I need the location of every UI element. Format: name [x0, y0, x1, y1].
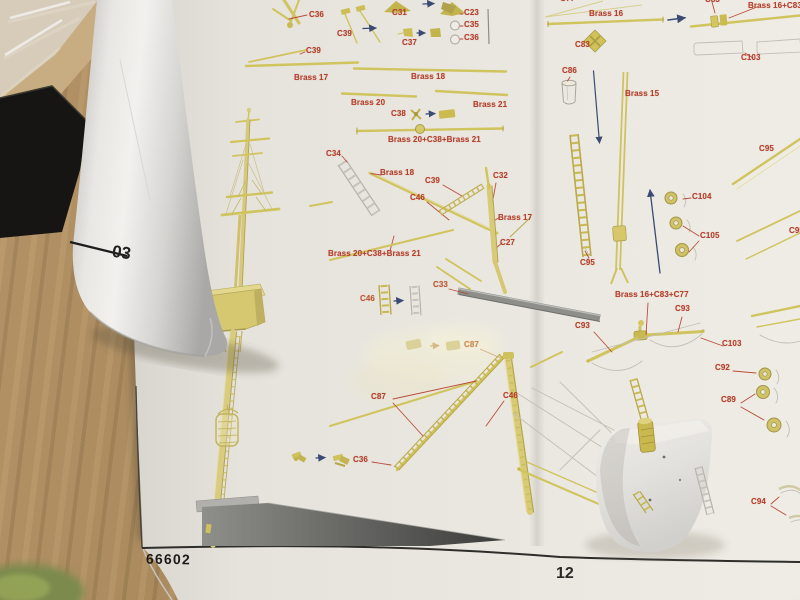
- part-label: C27: [500, 239, 515, 248]
- part-label: C34: [326, 150, 341, 159]
- part-label: C46: [503, 392, 518, 401]
- part-label: C103: [741, 54, 761, 63]
- part-label: C33: [433, 281, 448, 290]
- part-label: C37: [402, 39, 417, 48]
- part-label: Brass 16+C83+C77: [615, 291, 689, 300]
- part-label: C36: [353, 456, 368, 465]
- part-label: C39: [306, 47, 321, 56]
- part-label: C83: [705, 0, 720, 5]
- photo-linework: [0, 0, 800, 600]
- part-label: Brass 20: [351, 99, 385, 108]
- part-label: Brass 17: [294, 74, 328, 83]
- part-label: C39: [425, 177, 440, 186]
- part-label: Brass 21: [473, 101, 507, 110]
- part-label: C23: [464, 9, 479, 18]
- part-label: C92: [715, 364, 730, 373]
- part-label: C93: [675, 305, 690, 314]
- part-label: C95: [759, 145, 774, 154]
- part-label: C46: [410, 194, 425, 203]
- part-label: C36: [464, 34, 479, 43]
- part-label: Brass 20+C38+Brass 21: [328, 250, 421, 259]
- photo-of-instruction-sheet: C36C31C39C37C23C35C36C39Brass 17Brass 18…: [0, 0, 800, 600]
- part-label: C86: [562, 67, 577, 76]
- part-label: Brass 20+C38+Brass 21: [388, 136, 481, 145]
- part-label: C94: [751, 498, 766, 507]
- part-label: C31: [392, 9, 407, 18]
- part-label: C83: [575, 41, 590, 50]
- part-label: Brass 16: [589, 10, 623, 19]
- kit-number: 66602: [146, 551, 191, 568]
- part-label: C87: [371, 393, 386, 402]
- part-label: Brass 18: [411, 73, 445, 82]
- green-object: [0, 564, 84, 600]
- part-label: C38: [391, 110, 406, 119]
- part-label: Brass 18: [380, 169, 414, 178]
- part-label: C87: [464, 341, 479, 350]
- adjacent-sheet-text: 03: [111, 242, 133, 265]
- part-label: C93: [575, 322, 590, 331]
- part-label: C46: [360, 295, 375, 304]
- part-label: Brass 15: [625, 90, 659, 99]
- page-number: 12: [556, 565, 574, 583]
- part-label: C36: [309, 11, 324, 20]
- part-label: C32: [493, 172, 508, 181]
- part-label: C89: [721, 396, 736, 405]
- part-label: C105: [700, 232, 720, 241]
- part-label: C77: [560, 0, 575, 4]
- part-label: C95: [580, 259, 595, 268]
- part-label: C103: [722, 340, 742, 349]
- part-label: C104: [692, 193, 712, 202]
- part-label: C95: [789, 227, 800, 236]
- part-label: Brass 17: [498, 214, 532, 223]
- part-label: C35: [464, 21, 479, 30]
- hull-block-diagram: [585, 417, 725, 559]
- part-label: C39: [337, 30, 352, 39]
- part-label: Brass 16+C83+C77: [748, 2, 800, 11]
